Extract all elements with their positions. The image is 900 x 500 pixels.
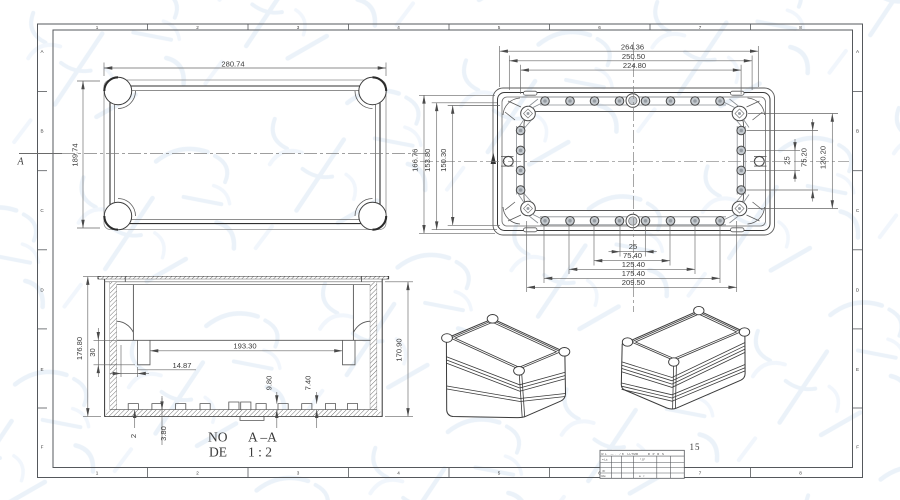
- svg-text:A: A: [17, 157, 25, 168]
- svg-text:7: 7: [699, 470, 702, 475]
- svg-text:NO: NO: [208, 430, 228, 445]
- svg-text:F: F: [41, 445, 44, 450]
- svg-text:≈F: ≈F: [602, 469, 606, 473]
- svg-text:*.G*: *.G*: [640, 458, 646, 462]
- svg-text:8: 8: [799, 470, 802, 475]
- svg-text:30: 30: [88, 348, 97, 356]
- svg-text:9.80: 9.80: [264, 376, 273, 391]
- svg-text:3.80: 3.80: [159, 426, 168, 441]
- svg-text:6: 6: [598, 25, 601, 30]
- svg-text:5: 5: [498, 25, 501, 30]
- svg-text:3: 3: [297, 25, 300, 30]
- svg-text:4: 4: [397, 470, 400, 475]
- svg-text:264.36: 264.36: [621, 42, 644, 51]
- svg-text:2: 2: [196, 25, 199, 30]
- svg-text:1 : 2: 1 : 2: [248, 445, 272, 460]
- svg-text:75.20: 75.20: [800, 148, 809, 167]
- svg-text:153.80: 153.80: [423, 149, 432, 172]
- svg-text:R L — . / 8 LLTMR: R L — . / 8 LLTMR R P R S: [602, 452, 665, 456]
- svg-text:DE: DE: [209, 445, 227, 460]
- svg-text:4: 4: [397, 25, 400, 30]
- svg-text:189.74: 189.74: [71, 143, 80, 166]
- svg-text:176.80: 176.80: [75, 337, 84, 360]
- svg-text:3: 3: [297, 470, 300, 475]
- svg-text:F: F: [856, 445, 859, 450]
- svg-text:224.80: 224.80: [623, 61, 646, 70]
- svg-text:a <: a <: [639, 474, 645, 478]
- svg-text:5: 5: [498, 470, 501, 475]
- svg-text:25: 25: [783, 156, 792, 164]
- svg-text:25: 25: [629, 242, 637, 251]
- svg-text:2: 2: [129, 434, 138, 438]
- svg-text:B: B: [856, 129, 859, 134]
- svg-text:14.87: 14.87: [172, 361, 191, 370]
- svg-text:209.50: 209.50: [622, 278, 645, 287]
- svg-text:2: 2: [196, 470, 199, 475]
- svg-text:150.30: 150.30: [439, 149, 448, 172]
- svg-text:1: 1: [96, 470, 99, 475]
- svg-text:E: E: [40, 367, 43, 372]
- svg-text:250.50: 250.50: [622, 52, 645, 61]
- svg-text:=.L±: =.L±: [602, 458, 608, 462]
- svg-text:175.40: 175.40: [622, 269, 645, 278]
- svg-text:125.40: 125.40: [622, 260, 645, 269]
- svg-text:7: 7: [699, 25, 702, 30]
- svg-text:193.30: 193.30: [233, 342, 256, 351]
- svg-text:1: 1: [96, 25, 99, 30]
- svg-text:280.74: 280.74: [221, 59, 244, 68]
- svg-text:B: B: [40, 129, 43, 134]
- svg-text:A –A: A –A: [248, 430, 277, 445]
- svg-text:170.90: 170.90: [395, 338, 404, 361]
- svg-text:8: 8: [799, 25, 802, 30]
- svg-text:120.20: 120.20: [818, 146, 827, 169]
- svg-text:166.76: 166.76: [410, 149, 419, 172]
- svg-text:15: 15: [690, 442, 701, 452]
- svg-text:7.40: 7.40: [303, 376, 312, 391]
- svg-text:E: E: [856, 367, 859, 372]
